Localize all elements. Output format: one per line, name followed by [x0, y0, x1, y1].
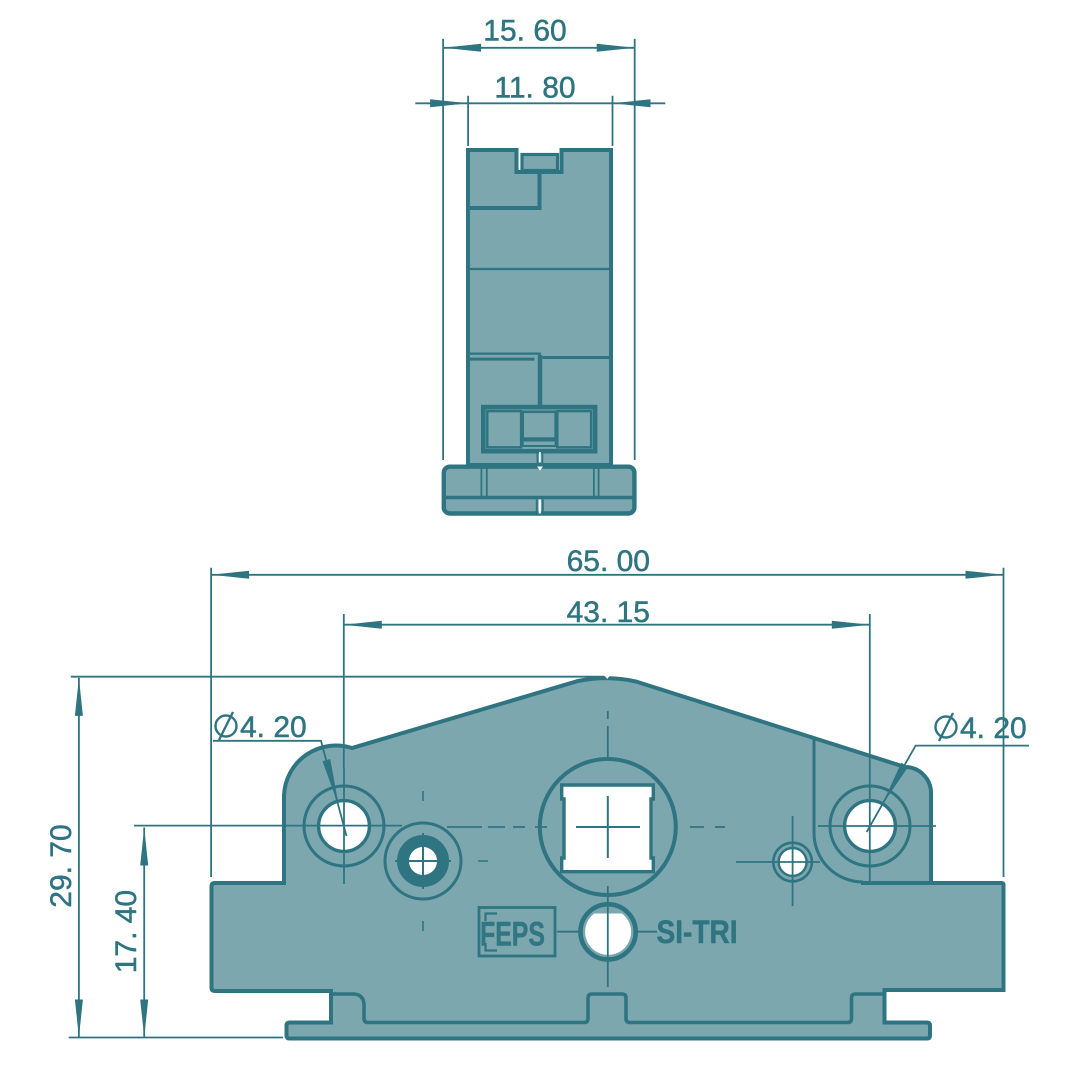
svg-text:11. 80: 11. 80	[494, 72, 575, 105]
svg-text:43. 15: 43. 15	[567, 596, 650, 629]
svg-text:FEPS: FEPS	[480, 916, 545, 954]
svg-text:65. 00: 65. 00	[567, 545, 650, 578]
svg-text:15. 60: 15. 60	[483, 15, 566, 48]
svg-text:4. 20: 4. 20	[960, 712, 1027, 745]
svg-text:29. 70: 29. 70	[45, 824, 78, 907]
svg-text:4. 20: 4. 20	[240, 711, 307, 744]
svg-text:17. 40: 17. 40	[110, 890, 143, 973]
svg-text:SI-TRI: SI-TRI	[657, 914, 738, 950]
